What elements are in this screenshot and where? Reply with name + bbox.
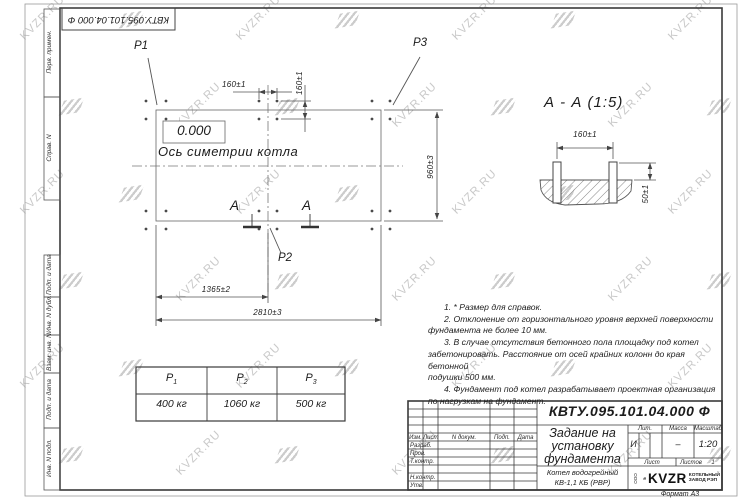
tb-doc-number: КВТУ.095.101.04.000 Ф bbox=[539, 404, 720, 419]
tb-product-line2: КВ-1,1 КБ (РВР) bbox=[540, 479, 625, 487]
kvzr-watermark-stripes-icon bbox=[335, 10, 361, 28]
p3-subscript: 3 bbox=[313, 379, 317, 386]
logo-company-text: КОТЕЛЬНЫЙ ЗАВОД РЭП bbox=[689, 473, 720, 484]
p3-symbol: Р bbox=[305, 372, 312, 384]
logo-ooo-text: ООО bbox=[633, 473, 638, 484]
tb-value-lit: И bbox=[628, 440, 639, 450]
plan-view-linework bbox=[132, 57, 443, 326]
dim-bolt-protrusion: 50±1 bbox=[642, 178, 651, 210]
dim-section-bolt-spacing: 160±1 bbox=[566, 131, 604, 140]
note-line: 1. * Размер для справок. bbox=[428, 302, 722, 314]
margin-field-vzam-inv: Взам. инв. N bbox=[46, 335, 53, 371]
tb-header-sign: Подп. bbox=[490, 435, 514, 442]
tb-value-mass: – bbox=[662, 440, 694, 450]
top-left-stamp: КВТУ.095.101.04.000 Ф bbox=[62, 8, 175, 30]
note-line: 4. Фундамент под котел разрабатывает про… bbox=[428, 384, 722, 396]
logo-name-text: KVZR bbox=[648, 471, 687, 486]
tb-header-sheets: Листов bbox=[676, 460, 706, 467]
loads-table-header-p1: Р1 bbox=[136, 372, 207, 387]
p2-subscript: 2 bbox=[244, 379, 248, 386]
margin-field-perv-primen: Перв. примен. bbox=[46, 9, 53, 95]
tb-header-date: Дата bbox=[514, 435, 537, 442]
section-cut-letter-left: А bbox=[230, 199, 239, 214]
tb-header-list: Лист bbox=[423, 435, 438, 442]
kvzr-watermark-stripes-icon bbox=[707, 271, 733, 289]
section-view-title: А - А (1:5) bbox=[544, 95, 623, 112]
watermark-text: KVZR.RU bbox=[18, 341, 67, 390]
dim-foundation-length: 2810±3 bbox=[235, 309, 300, 318]
tb-row-utv: Утв. bbox=[410, 483, 424, 490]
level-mark: 0.000 bbox=[166, 124, 222, 139]
load-point-p1-label: Р1 bbox=[134, 40, 148, 53]
kvzr-watermark-stripes-icon bbox=[551, 10, 577, 28]
section-cut-letter-right: А bbox=[302, 199, 311, 214]
margin-field-sprav-n: Справ. N bbox=[46, 98, 53, 198]
note-line: подушки 500 мм. bbox=[428, 372, 722, 384]
tb-header-doc: N докум. bbox=[438, 435, 490, 442]
tb-row-razrab: Разраб. bbox=[410, 443, 432, 450]
kvzr-watermark-stripes-icon bbox=[551, 184, 577, 202]
kvzr-watermark-stripes-icon bbox=[119, 184, 145, 202]
kvzr-watermark-stripes-icon bbox=[59, 445, 85, 463]
tb-value-sheets: 1 bbox=[706, 460, 720, 467]
notes-block: 1. * Размер для справок. 2. Отклонение о… bbox=[428, 302, 722, 407]
tb-row-nkontr: Н.контр. bbox=[410, 475, 435, 482]
company-line2: ЗАВОД РЭП bbox=[689, 478, 720, 483]
note-line: 2. Отклонение от горизонтального уровня … bbox=[428, 314, 722, 326]
kvzr-watermark-stripes-icon bbox=[491, 97, 517, 115]
kvzr-watermark-stripes-icon bbox=[275, 97, 301, 115]
note-line: фундамента не более 10 мм. bbox=[428, 325, 722, 337]
tb-product-line1: Котел водогрейный bbox=[540, 469, 625, 477]
tb-header-izm: Изм. bbox=[408, 435, 423, 442]
dim-bolt-spacing-y: 160±1 bbox=[296, 66, 305, 100]
watermark-text: KVZR.RU bbox=[666, 0, 715, 43]
watermark-text: KVZR.RU bbox=[450, 167, 499, 216]
watermark-text: KVZR.RU bbox=[450, 0, 499, 43]
sheet-frame bbox=[25, 4, 737, 496]
tb-header-lit: Лит. bbox=[628, 426, 662, 433]
dim-bolt-spacing-x: 160±1 bbox=[222, 81, 246, 90]
kvzr-logo: ООО KVZR КОТЕЛЬНЫЙ ЗАВОД РЭП bbox=[630, 468, 720, 488]
section-view-linework bbox=[540, 142, 656, 205]
tb-row-prov: Пров. bbox=[410, 451, 426, 458]
tb-header-sheet: Лист bbox=[628, 460, 676, 467]
watermark-text: KVZR.RU bbox=[18, 167, 67, 216]
load-point-p2-label: Р2 bbox=[278, 252, 292, 265]
loads-table-value-p2: 1060 кг bbox=[207, 399, 277, 411]
load-point-p3-label: Р3 bbox=[413, 37, 427, 50]
kvzr-watermark-stripes-icon bbox=[275, 445, 301, 463]
watermark-text: KVZR.RU bbox=[666, 167, 715, 216]
drawing-sheet: KVZR.RUKVZR.RUKVZR.RUKVZR.RUKVZR.RUKVZR.… bbox=[0, 0, 750, 500]
watermark-text: KVZR.RU bbox=[390, 80, 439, 129]
note-line: забетонировать. Расстояние от осей крайн… bbox=[428, 349, 722, 372]
dim-to-center: 1365±2 bbox=[186, 286, 246, 295]
tb-row-tkontr: Т.контр. bbox=[410, 459, 434, 466]
watermark-text: KVZR.RU bbox=[606, 254, 655, 303]
margin-field-inv-podl: Инв. N подл. bbox=[46, 428, 53, 488]
watermark-text: KVZR.RU bbox=[18, 0, 67, 43]
loads-table-value-p3: 500 кг bbox=[277, 399, 345, 411]
watermark-text: KVZR.RU bbox=[234, 167, 283, 216]
margin-field-podp-data-1: Подп. и дата bbox=[46, 255, 53, 295]
kvzr-watermark-stripes-icon bbox=[335, 184, 361, 202]
tb-header-scale: Масштаб bbox=[694, 426, 722, 433]
kvzr-watermark-stripes-icon bbox=[275, 271, 301, 289]
kvzr-watermark-stripes-icon bbox=[707, 97, 733, 115]
loads-table-header-p2: Р2 bbox=[207, 372, 277, 387]
dim-foundation-width: 960±3 bbox=[427, 144, 436, 190]
watermark-text: KVZR.RU bbox=[234, 0, 283, 43]
boiler-axis-label: Ось симетрии котла bbox=[158, 145, 298, 159]
margin-field-podp-data-2: Подп. и дата bbox=[46, 373, 53, 426]
watermark-layer: KVZR.RUKVZR.RUKVZR.RUKVZR.RUKVZR.RUKVZR.… bbox=[0, 0, 750, 500]
kvzr-watermark-stripes-icon bbox=[491, 271, 517, 289]
margin-field-inv-dubl: Инв. N дубл. bbox=[46, 297, 53, 333]
kvzr-watermark-stripes-icon bbox=[491, 445, 517, 463]
note-line: 3. В случае отсутствия бетонного пола пл… bbox=[428, 337, 722, 349]
p1-subscript: 1 bbox=[173, 379, 177, 386]
tb-value-scale: 1:20 bbox=[694, 440, 722, 450]
kvzr-watermark-stripes-icon bbox=[59, 271, 85, 289]
tb-header-mass: Масса bbox=[662, 426, 694, 433]
p2-symbol: Р bbox=[236, 372, 243, 384]
kvzr-stripes-icon bbox=[643, 472, 647, 485]
format-note: Формат А3 bbox=[650, 491, 710, 499]
watermark-text: KVZR.RU bbox=[390, 254, 439, 303]
drawing-linework bbox=[0, 0, 750, 500]
loads-table-header-p3: Р3 bbox=[277, 372, 345, 387]
watermark-text: KVZR.RU bbox=[174, 428, 223, 477]
watermark-text: KVZR.RU bbox=[174, 254, 223, 303]
tb-title: Задание на установку фундамента bbox=[540, 427, 625, 466]
loads-table-value-p1: 400 кг bbox=[136, 399, 207, 411]
kvzr-watermark-stripes-icon bbox=[59, 97, 85, 115]
